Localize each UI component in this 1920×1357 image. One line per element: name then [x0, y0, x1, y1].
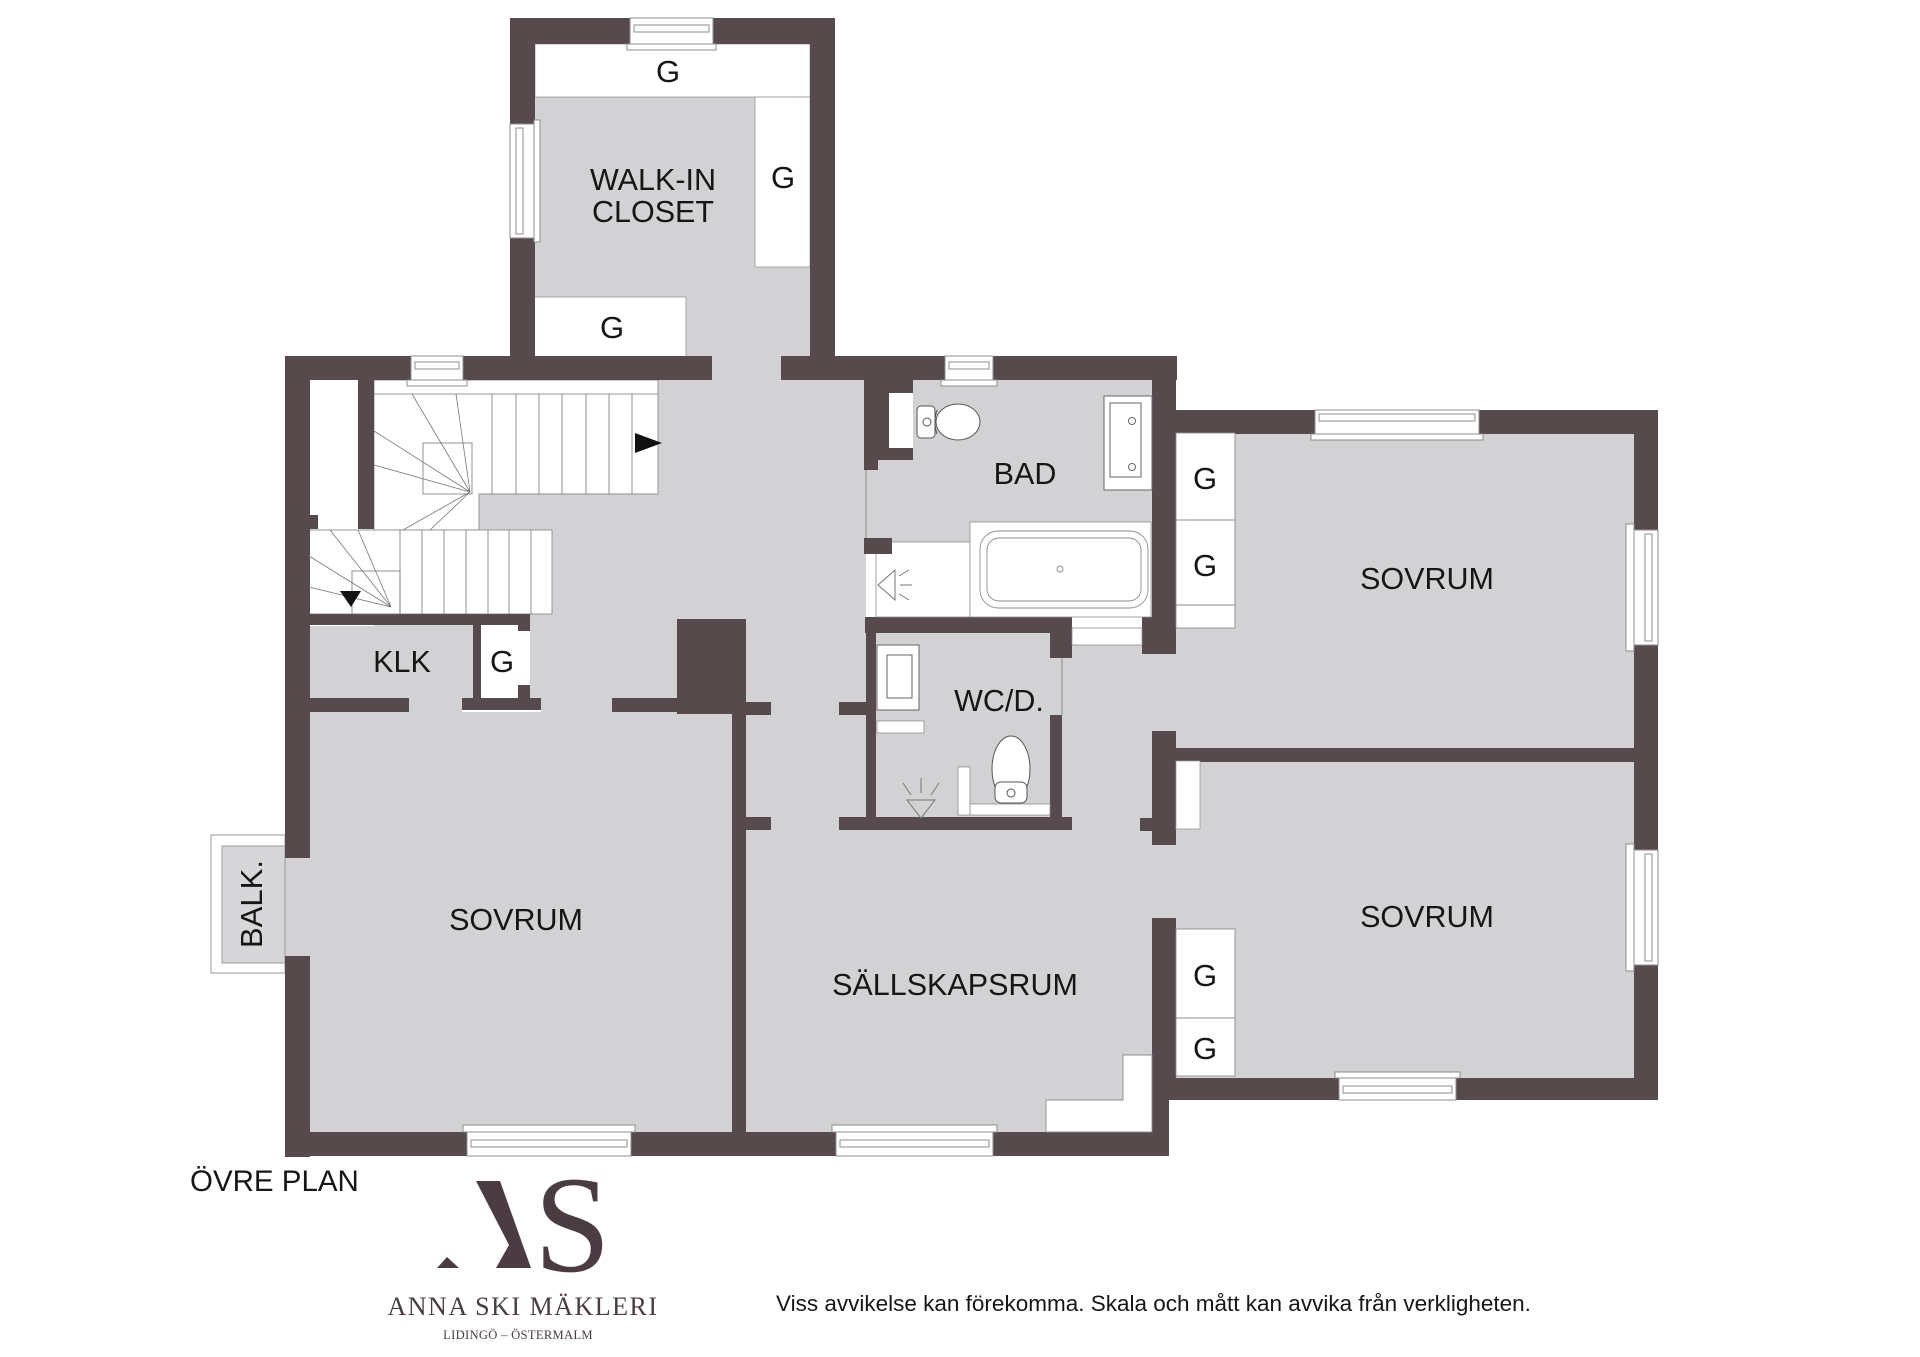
svg-text:BALK.: BALK.: [234, 860, 269, 948]
svg-text:G: G: [1193, 958, 1217, 993]
svg-text:CLOSET: CLOSET: [592, 195, 714, 229]
svg-text:KLK: KLK: [373, 645, 431, 679]
svg-text:SOVRUM: SOVRUM: [1360, 562, 1494, 596]
svg-text:G: G: [600, 310, 624, 345]
svg-text:G: G: [771, 160, 795, 195]
svg-text:ÖVRE PLAN: ÖVRE PLAN: [190, 1165, 359, 1198]
svg-text:S: S: [534, 1148, 611, 1301]
svg-text:BAD: BAD: [994, 457, 1057, 491]
svg-text:WC/D.: WC/D.: [954, 684, 1044, 718]
svg-text:LIDINGÖ – ÖSTERMALM: LIDINGÖ – ÖSTERMALM: [443, 1328, 593, 1342]
svg-text:ANNA SKI MÄKLERI: ANNA SKI MÄKLERI: [388, 1292, 659, 1321]
svg-text:G: G: [1193, 548, 1217, 583]
svg-text:G: G: [656, 54, 680, 89]
svg-text:G: G: [1193, 461, 1217, 496]
svg-text:SOVRUM: SOVRUM: [1360, 900, 1494, 934]
svg-text:G: G: [490, 644, 514, 679]
svg-text:SÄLLSKAPSRUM: SÄLLSKAPSRUM: [832, 968, 1078, 1002]
svg-text:Viss avvikelse kan förekomma.: Viss avvikelse kan förekomma. Skala och …: [776, 1291, 1531, 1316]
svg-text:G: G: [1193, 1031, 1217, 1066]
svg-text:SOVRUM: SOVRUM: [449, 903, 583, 937]
svg-text:WALK-IN: WALK-IN: [590, 163, 716, 197]
